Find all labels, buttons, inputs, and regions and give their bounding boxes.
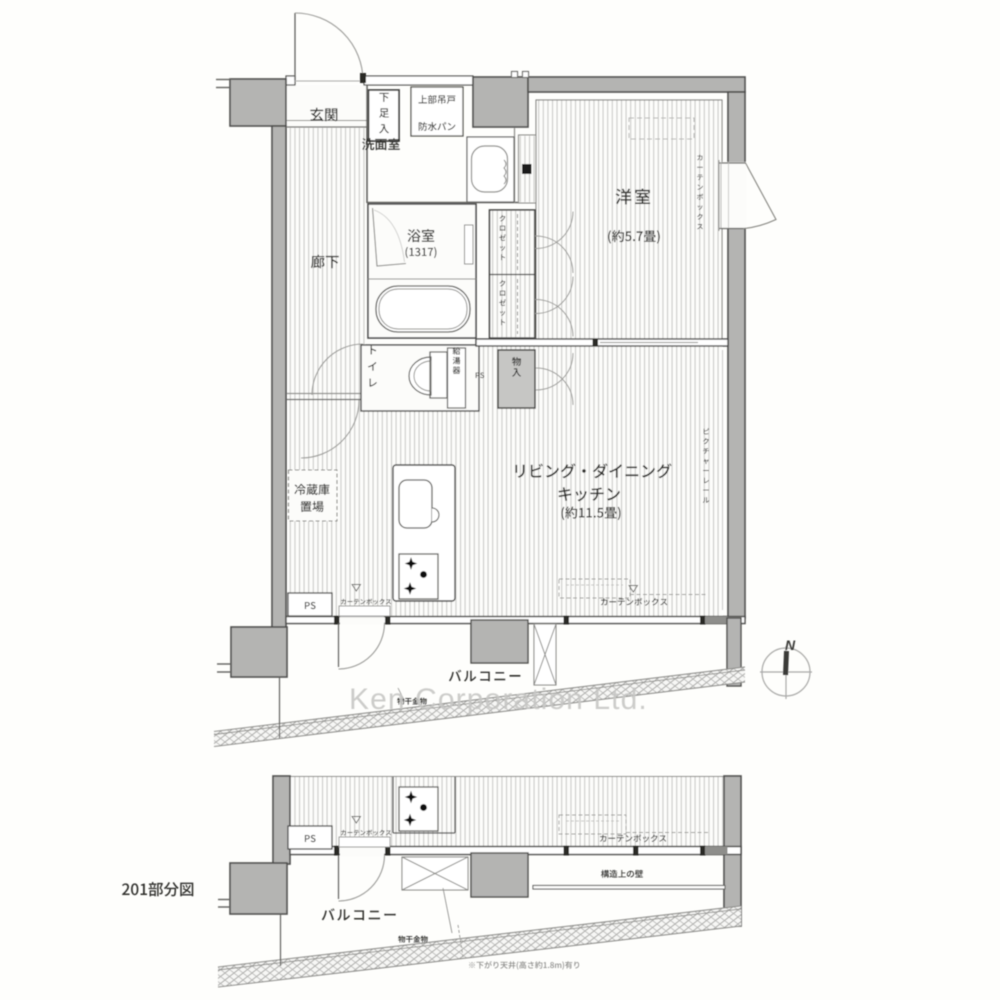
svg-text:N: N — [785, 637, 796, 653]
svg-text:Ken Corporation Ltd.: Ken Corporation Ltd. — [349, 683, 648, 716]
